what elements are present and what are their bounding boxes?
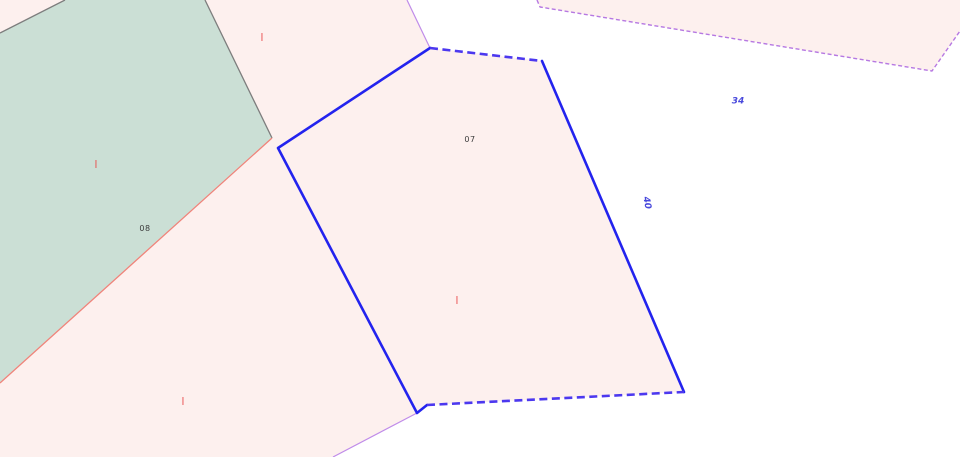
parcel-layer <box>0 0 960 457</box>
map-canvas[interactable]: 08 07 34 40 | | | | <box>0 0 960 457</box>
top-right-parcel-polygon[interactable] <box>537 0 960 71</box>
